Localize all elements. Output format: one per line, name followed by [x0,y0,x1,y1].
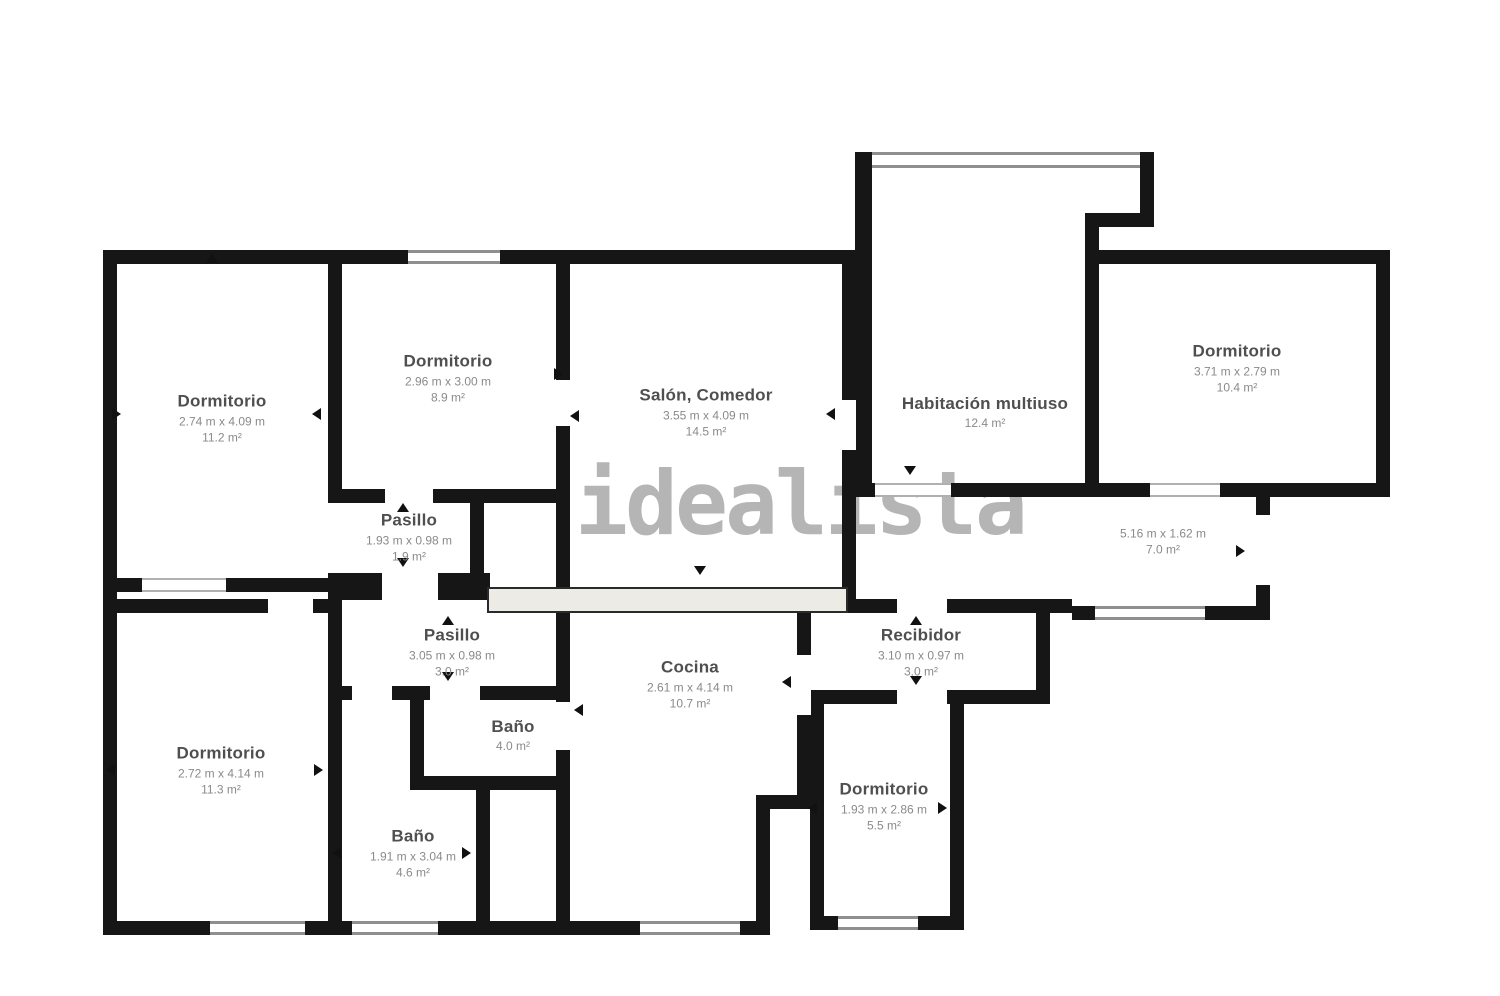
wall-segment [1036,599,1050,704]
door-arrow-icon [462,847,471,859]
door-opening [430,686,480,700]
room-dims: 2.61 m x 4.14 m [647,681,733,695]
door-arrow-icon [1236,545,1245,557]
door-opening [385,489,433,503]
room-dims: 5.16 m x 1.62 m [1120,527,1206,541]
room-area: 3.0 m² [878,665,964,679]
room-name: Dormitorio [840,780,929,800]
room-area: 5.5 m² [840,819,929,833]
door-opening [556,380,570,426]
door-opening [352,686,392,700]
wall-segment [103,578,355,592]
door-opening [1256,515,1270,585]
idealista-watermark: idealista [575,452,1025,555]
door-arrow-icon [826,408,835,420]
room-dims: 1.93 m x 0.98 m [366,534,452,548]
door-opening [142,578,226,592]
room-label-bathroom-upper: Baño 4.0 m² [491,717,534,753]
room-label-multipurpose: Habitación multiuso 12.4 m² [902,394,1068,430]
door-arrow-icon [312,408,321,420]
door-arrow-icon [112,408,121,420]
room-area: 11.3 m² [177,783,266,797]
wall-segment [328,489,570,503]
door-arrow-icon [694,566,706,575]
room-dims: 2.96 m x 3.00 m [404,375,493,389]
wall-segment [950,690,964,930]
room-name: Recibidor [878,626,964,646]
room-dims: 3.05 m x 0.98 m [409,649,495,663]
wall-segment [556,599,570,935]
wall-segment [328,250,342,503]
door-arrow-icon [106,764,115,776]
room-name: Pasillo [366,511,452,531]
room-label-kitchen: Cocina 2.61 m x 4.14 m 10.7 m² [647,658,733,711]
room-label-bedroom-top-left: Dormitorio 2.74 m x 4.09 m 11.2 m² [178,392,267,445]
wall-segment [103,250,117,606]
room-area: 8.9 m² [404,391,493,405]
room-dims: 2.74 m x 4.09 m [178,415,267,429]
door-arrow-icon [904,466,916,475]
window-marker [872,152,1140,168]
room-name: Dormitorio [404,352,493,372]
room-label-bedroom-top-right: Dormitorio 3.71 m x 2.79 m 10.4 m² [1193,342,1282,395]
door-opening [842,400,856,450]
room-area: 4.0 m² [491,739,534,753]
wall-segment [1376,250,1390,497]
room-label-hallway-lower: Pasillo 3.05 m x 0.98 m 3.0 m² [409,626,495,679]
door-arrow-icon [206,254,218,263]
room-label-corridor-right: 5.16 m x 1.62 m 7.0 m² [1120,524,1206,557]
window-marker [640,921,740,935]
room-name: Baño [370,827,456,847]
beam-band [487,587,848,613]
room-label-entry-hall: Recibidor 3.10 m x 0.97 m 3.0 m² [878,626,964,679]
room-name: Salón, Comedor [639,386,772,406]
door-arrow-icon [782,676,791,688]
window-marker [352,921,438,935]
room-label-bathroom-lower: Baño 1.91 m x 3.04 m 4.6 m² [370,827,456,880]
window-marker [210,921,305,935]
wall-segment [476,776,490,935]
wall-segment [756,795,770,935]
door-opening [268,599,313,613]
room-area: 11.2 m² [178,431,267,445]
door-arrow-icon [570,410,579,422]
door-opening [797,655,811,715]
floor-plan: idealista [0,0,1500,996]
wall-segment [410,776,570,790]
door-opening [556,702,570,750]
room-area: 10.7 m² [647,697,733,711]
room-area: 12.4 m² [902,416,1068,430]
room-label-hallway-upper: Pasillo 1.93 m x 0.98 m 1.9 m² [366,511,452,564]
door-opening [382,573,438,600]
room-dims: 2.72 m x 4.14 m [177,767,266,781]
room-name: Dormitorio [1193,342,1282,362]
wall-segment [556,250,570,612]
room-name: Habitación multiuso [902,394,1068,414]
room-dims: 3.10 m x 0.97 m [878,649,964,663]
door-opening [897,599,947,613]
window-marker [1095,606,1205,620]
door-arrow-icon [332,847,341,859]
room-area: 7.0 m² [1120,543,1206,557]
room-label-bedroom-top-2: Dormitorio 2.96 m x 3.00 m 8.9 m² [404,352,493,405]
window-marker [408,250,500,264]
room-label-living-dining: Salón, Comedor 3.55 m x 4.09 m 14.5 m² [639,386,772,439]
room-label-bedroom-bottom-left: Dormitorio 2.72 m x 4.14 m 11.3 m² [177,744,266,797]
room-label-bedroom-bottom: Dormitorio 1.93 m x 2.86 m 5.5 m² [840,780,929,833]
room-dims: 3.55 m x 4.09 m [639,409,772,423]
room-name: Dormitorio [177,744,266,764]
door-arrow-icon [938,802,947,814]
wall-segment [855,152,872,497]
room-area: 1.9 m² [366,550,452,564]
door-arrow-icon [808,802,817,814]
window-marker [838,916,918,930]
door-arrow-icon [314,764,323,776]
door-arrow-icon [442,616,454,625]
door-opening [897,690,947,704]
door-opening [1150,483,1220,497]
room-name: Dormitorio [178,392,267,412]
room-name: Cocina [647,658,733,678]
room-area: 10.4 m² [1193,381,1282,395]
room-dims: 1.91 m x 3.04 m [370,850,456,864]
door-arrow-icon [910,616,922,625]
room-area: 4.6 m² [370,866,456,880]
room-area: 14.5 m² [639,425,772,439]
door-arrow-icon [554,368,563,380]
door-arrow-icon [574,704,583,716]
room-area: 3.0 m² [409,665,495,679]
door-opening [875,483,951,497]
room-name: Baño [491,717,534,737]
wall-segment [1092,250,1390,264]
room-dims: 1.93 m x 2.86 m [840,803,929,817]
wall-segment [328,599,342,935]
room-name: Pasillo [409,626,495,646]
room-dims: 3.71 m x 2.79 m [1193,365,1282,379]
